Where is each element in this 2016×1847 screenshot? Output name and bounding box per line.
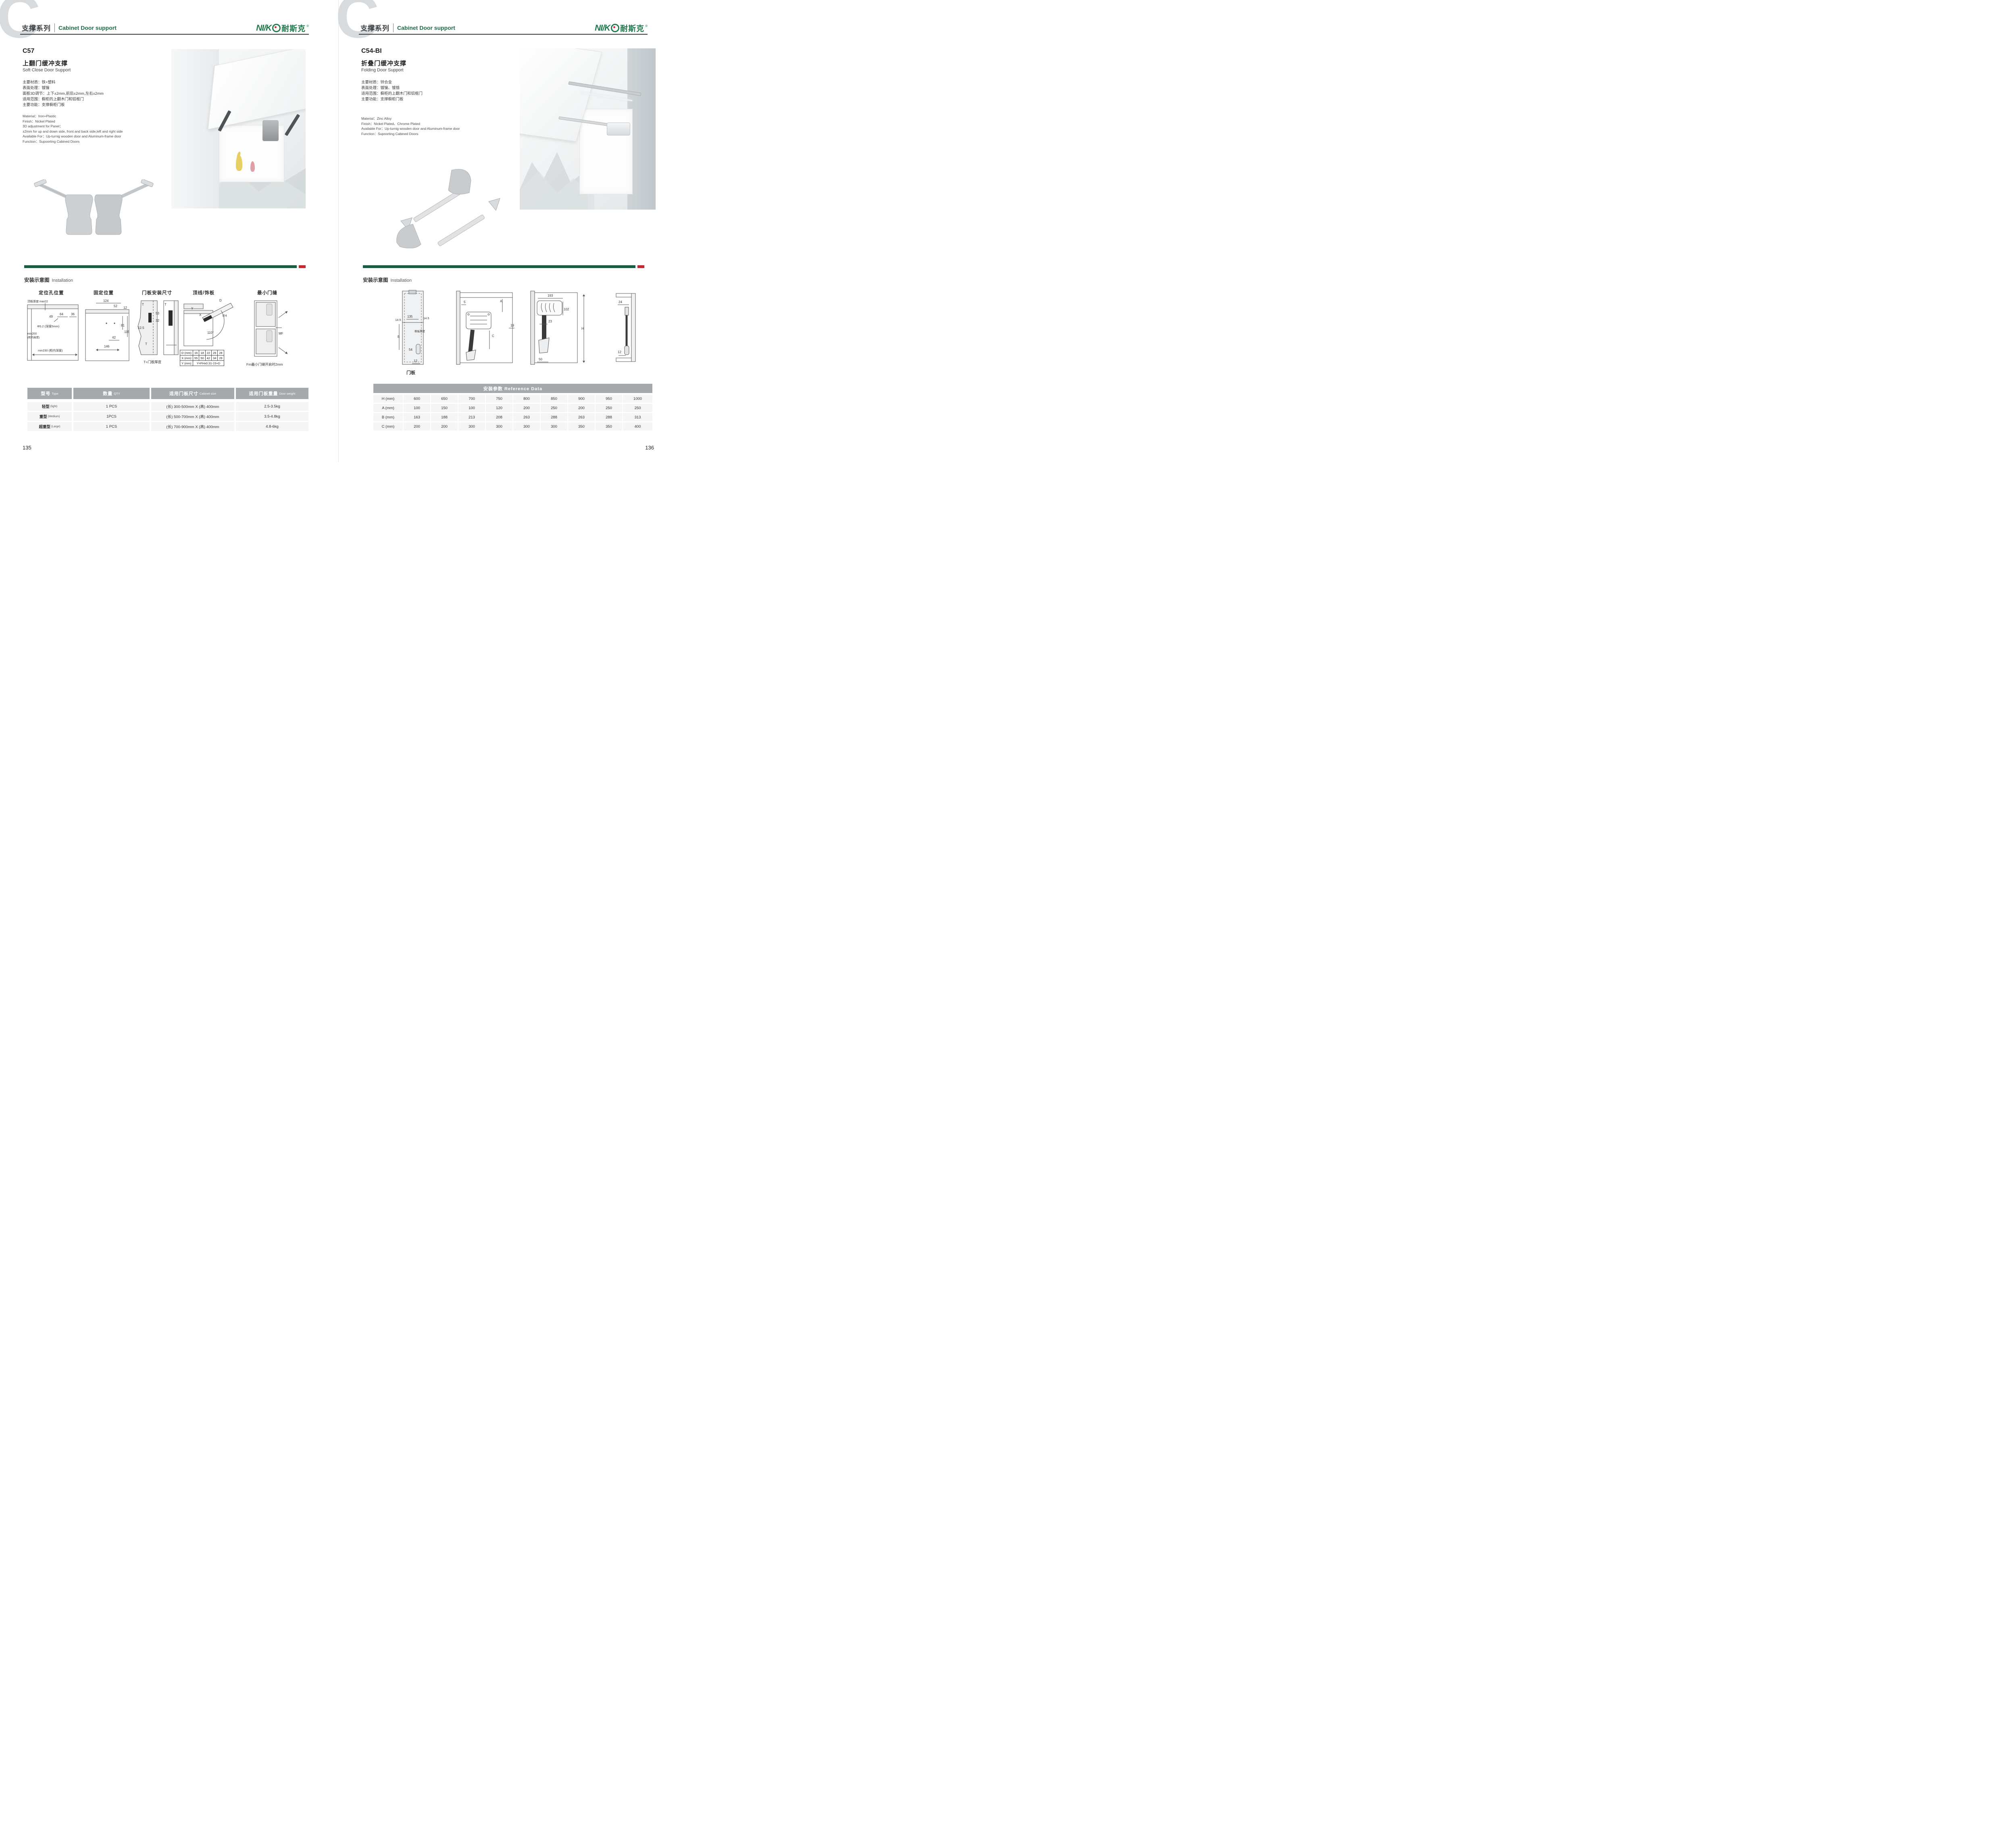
diagram-install-section-a: 5 A C 19 bbox=[455, 289, 517, 366]
value-cell: 263 bbox=[513, 413, 540, 421]
row-label: B (mm) bbox=[373, 413, 403, 421]
header-divider bbox=[54, 23, 55, 32]
svg-text:5: 5 bbox=[464, 300, 466, 304]
spec-line: 表面处理：镀镍、镀铬 bbox=[361, 85, 423, 91]
cell: 50 bbox=[199, 356, 205, 361]
row-label: A (mm) bbox=[373, 404, 403, 412]
svg-text:24: 24 bbox=[619, 300, 622, 304]
brand-logo: NI/K 耐斯克 ® bbox=[256, 23, 309, 33]
value-cell: 208 bbox=[486, 413, 512, 421]
svg-text:Φ5.2 (深度5mm): Φ5.2 (深度5mm) bbox=[37, 324, 60, 328]
table-cell-size: (长) 700-900mm X (高) 400mm bbox=[151, 422, 234, 431]
svg-text:T: T bbox=[165, 303, 167, 306]
cell: 55 bbox=[193, 356, 199, 361]
product-photo-cabinet bbox=[171, 49, 306, 208]
svg-text:52: 52 bbox=[114, 304, 117, 308]
value-cell: 250 bbox=[541, 404, 567, 412]
spec-line: 主要材质：铁+塑料 bbox=[23, 80, 104, 85]
spec-line: 主要材质：锌合金 bbox=[361, 80, 423, 85]
specs-cn: 主要材质：锌合金 表面处理：镀镍、镀铬 适用范围：橱柜的上翻木门和铝框门 主要功… bbox=[361, 80, 423, 102]
diagram-fixing-position: 124 52 12 81 115 42 146 bbox=[84, 298, 132, 366]
value-cell: 200 bbox=[568, 404, 595, 412]
product-title-en: Folding Door Support bbox=[361, 68, 404, 73]
diagram-title: 顶线/饰板 bbox=[193, 289, 215, 296]
reference-table-title: 安装参数 Reference Data bbox=[373, 384, 652, 393]
table-header: 数量 QTY bbox=[73, 388, 150, 399]
spec-line: 面板3D调节：上下±2mm,前后±2mm,左右±2mm bbox=[23, 91, 104, 97]
cell: Y (mm) bbox=[180, 361, 193, 366]
svg-text:侧板厚度: 侧板厚度 bbox=[414, 329, 425, 333]
table-header: 适用门板尺寸 Cabinet size bbox=[151, 388, 234, 399]
value-cell: 300 bbox=[541, 422, 567, 431]
spec-line: Material：Zinc Alloy bbox=[361, 116, 460, 121]
svg-text:54: 54 bbox=[409, 348, 412, 352]
value-cell: 650 bbox=[431, 395, 458, 403]
cell: 22 bbox=[205, 350, 211, 356]
svg-text:42: 42 bbox=[112, 336, 116, 339]
page-header: 支撑系列 Cabinet Door support bbox=[22, 23, 117, 33]
crown-panel-data-table: D (mm) 16 18 22 26 28 X (mm) 55 50 42 34… bbox=[180, 350, 224, 366]
cell: X (mm) bbox=[180, 356, 193, 361]
table-cell-qty: 1PCS bbox=[73, 412, 150, 421]
header-rule bbox=[359, 34, 648, 35]
cell: 28 bbox=[218, 350, 224, 356]
svg-text:53: 53 bbox=[156, 312, 159, 315]
svg-text:12: 12 bbox=[123, 306, 127, 310]
logo-registered-mark: ® bbox=[645, 24, 648, 28]
logo-cn-text: 耐斯克 bbox=[281, 23, 306, 33]
table-cell-size: (长) 300-500mm X (高) 400mm bbox=[151, 402, 234, 411]
svg-text:MF: MF bbox=[279, 332, 283, 335]
svg-text:12: 12 bbox=[414, 359, 417, 363]
install-divider-red bbox=[637, 265, 644, 268]
svg-text:64: 64 bbox=[60, 312, 63, 316]
type-cn: 超重型 bbox=[39, 424, 50, 429]
value-cell: 313 bbox=[623, 413, 652, 421]
value-cell: 300 bbox=[458, 422, 485, 431]
value-cell: 300 bbox=[513, 422, 540, 431]
diagram-install-section-b: 193 102 23 H 50 bbox=[528, 289, 588, 366]
damper-body bbox=[607, 123, 630, 135]
spec-line: Available For：Up-turnig wooden door and … bbox=[23, 134, 123, 139]
value-cell: 700 bbox=[458, 395, 485, 403]
header-cn: 型号 bbox=[41, 390, 50, 397]
svg-text:14.5: 14.5 bbox=[423, 316, 429, 320]
value-cell: 200 bbox=[513, 404, 540, 412]
product-title-en: Soft Close Door Support bbox=[23, 68, 71, 73]
pink-figurine bbox=[250, 161, 255, 172]
logo-cn-text: 耐斯克 bbox=[620, 23, 644, 33]
row-label: H (mm) bbox=[373, 395, 403, 403]
spec-line: Material：Iron+Plastic bbox=[23, 114, 123, 119]
svg-text:102: 102 bbox=[564, 308, 569, 311]
svg-text:B: B bbox=[398, 335, 400, 339]
install-divider-red bbox=[299, 265, 306, 268]
cell: 26 bbox=[212, 350, 218, 356]
svg-text:50: 50 bbox=[539, 358, 542, 361]
table-cell-type: 重型 (Medium) bbox=[27, 412, 72, 421]
catalog-spread: C 支撑系列 Cabinet Door support NI/K 耐斯克 ® C… bbox=[0, 0, 676, 462]
type-cn: 重型 bbox=[40, 414, 47, 419]
table-header: 适用门板重量 Door weight bbox=[236, 388, 308, 399]
diagram-crown-panel: Y X D FH 110° D (mm) 16 18 22 26 28 X (m… bbox=[182, 297, 239, 348]
svg-text:146: 146 bbox=[104, 345, 110, 348]
install-title-cn: 安装示意图 bbox=[363, 276, 388, 283]
spec-line: 3D adjustment for Panel： bbox=[23, 124, 123, 129]
value-cell: 350 bbox=[596, 422, 622, 431]
type-en: (light) bbox=[50, 405, 58, 408]
install-title-cn: 安装示意图 bbox=[24, 276, 50, 283]
spec-line: Finish：Nickel Plated bbox=[23, 119, 123, 124]
svg-text:C: C bbox=[492, 334, 494, 338]
cell: 42 bbox=[205, 356, 211, 361]
table-cell-weight: 3.5-4.8kg bbox=[236, 412, 308, 421]
svg-text:124: 124 bbox=[103, 299, 109, 303]
svg-text:115: 115 bbox=[124, 330, 129, 334]
diagram-title: 门板安装尺寸 bbox=[142, 289, 172, 296]
diagram-title: 定位孔位置 bbox=[39, 289, 64, 296]
header-cn: 适用门板尺寸 bbox=[169, 390, 198, 397]
svg-text:193: 193 bbox=[548, 294, 553, 297]
diagram-door-mounting-size: T 53 32 12.5 T T T=门板厚度 bbox=[135, 298, 182, 359]
spec-line: 主要功能：支撑橱柜门板 bbox=[23, 102, 104, 108]
type-cn: 轻型 bbox=[42, 404, 50, 409]
header-divider bbox=[393, 23, 394, 32]
table-cell-weight: 4.8-6kg bbox=[236, 422, 308, 431]
value-cell: 600 bbox=[404, 395, 430, 403]
table-cell-qty: 1 PCS bbox=[73, 422, 150, 431]
cell: 18 bbox=[199, 350, 205, 356]
value-cell: 188 bbox=[431, 413, 458, 421]
svg-text:81: 81 bbox=[121, 324, 125, 327]
svg-text:min230 (柜内深度): min230 (柜内深度) bbox=[38, 348, 63, 352]
spec-line: Available For：Up-turnig wooden door and … bbox=[361, 126, 460, 131]
value-cell: 300 bbox=[486, 422, 512, 431]
logo-ring-dot-icon bbox=[611, 24, 619, 32]
svg-text:12.5: 12.5 bbox=[138, 326, 144, 330]
product-photo-hardware bbox=[30, 179, 157, 236]
table-cell-size: (长) 500-700mm X (高) 400mm bbox=[151, 412, 234, 421]
page-right: C 支撑系列 Cabinet Door support NI/K 耐斯克 ® C… bbox=[338, 0, 676, 462]
diagram-note: T=门板厚度 bbox=[144, 360, 161, 364]
diagram-door-panel: 135 14.5 14.5 B 侧板厚度 54 12 门板 bbox=[395, 289, 430, 366]
value-cell: 100 bbox=[458, 404, 485, 412]
header-en: Type bbox=[52, 392, 58, 395]
brand-logo: NI/K 耐斯克 ® bbox=[595, 23, 648, 33]
table-header: 型号 Type bbox=[27, 388, 72, 399]
type-en: (Medium) bbox=[48, 415, 60, 418]
diagram-install-section-side: 24 12 bbox=[614, 289, 639, 366]
value-cell: 163 bbox=[404, 413, 430, 421]
logo-latin-text: NI/K bbox=[595, 23, 610, 33]
specs-cn: 主要材质：铁+塑料 表面处理：镀镍 面板3D调节：上下±2mm,前后±2mm,左… bbox=[23, 80, 104, 108]
hardware-pair-drawing bbox=[387, 156, 508, 248]
series-title-cn: 支撑系列 bbox=[22, 23, 51, 33]
logo-latin-text: NI/K bbox=[256, 23, 271, 33]
svg-text:49: 49 bbox=[49, 315, 53, 318]
diagram-positioning-holes: 顶板厚度 max22 49 64 36 Φ5.2 (深度5mm) min200 … bbox=[26, 298, 80, 366]
product-photo-cabinet bbox=[520, 48, 656, 210]
svg-text:(柜内高度): (柜内高度) bbox=[27, 335, 40, 339]
value-cell: 1000 bbox=[623, 395, 652, 403]
spec-line: ±2mm for up and down side, front and bac… bbox=[23, 129, 123, 134]
cell: 34 bbox=[212, 356, 218, 361]
type-en: (Large) bbox=[51, 425, 60, 428]
svg-text:min200: min200 bbox=[27, 333, 37, 335]
install-title-en: Installation bbox=[52, 278, 73, 283]
svg-text:36: 36 bbox=[71, 312, 75, 316]
page-left: C 支撑系列 Cabinet Door support NI/K 耐斯克 ® C… bbox=[0, 0, 338, 462]
row-label: C (mm) bbox=[373, 422, 403, 431]
cell: 16 bbox=[193, 350, 199, 356]
install-title: 安装示意图 Installation bbox=[24, 276, 73, 283]
value-cell: 750 bbox=[486, 395, 512, 403]
value-cell: 263 bbox=[568, 413, 595, 421]
install-title: 安装示意图 Installation bbox=[363, 276, 412, 283]
page-number: 136 bbox=[645, 445, 654, 451]
header-rule bbox=[20, 34, 309, 35]
svg-text:135: 135 bbox=[407, 315, 413, 318]
series-title-en: Cabinet Door support bbox=[58, 25, 117, 31]
spec-line: 适用范围：橱柜的上翻木门和铝框门 bbox=[23, 97, 104, 102]
spec-line: 适用范围：橱柜的上翻木门和铝框门 bbox=[361, 91, 423, 97]
svg-text:Y: Y bbox=[191, 307, 194, 310]
value-cell: 288 bbox=[596, 413, 622, 421]
svg-text:T: T bbox=[142, 303, 144, 306]
logo-ring-dot-icon bbox=[272, 24, 281, 32]
value-cell: 100 bbox=[404, 404, 430, 412]
svg-text:12: 12 bbox=[618, 350, 621, 354]
cell: 29 bbox=[218, 356, 224, 361]
product-model: C54-BI bbox=[361, 48, 382, 55]
value-cell: 800 bbox=[513, 395, 540, 403]
table-cell-type: 轻型 (light) bbox=[27, 402, 72, 411]
specs-en: Material：Iron+Plastic Finish：Nickel Plat… bbox=[23, 114, 123, 144]
product-title-cn: 上翻门缓冲支撑 bbox=[23, 59, 68, 67]
product-model: C57 bbox=[23, 48, 34, 55]
svg-text:14.5: 14.5 bbox=[395, 318, 401, 322]
value-cell: 900 bbox=[568, 395, 595, 403]
product-title-cn: 折叠门缓冲支撑 bbox=[361, 59, 406, 67]
header-cn: 数量 bbox=[103, 390, 112, 397]
table-cell-type: 超重型 (Large) bbox=[27, 422, 72, 431]
diagram-label: 门板 bbox=[406, 369, 415, 376]
series-title-en: Cabinet Door support bbox=[397, 25, 455, 31]
svg-text:顶板厚度 max22: 顶板厚度 max22 bbox=[27, 300, 48, 303]
value-cell: 850 bbox=[541, 395, 567, 403]
header-en: Cabinet size bbox=[200, 392, 216, 395]
cell: Y=FHx0.31-15+D bbox=[193, 361, 224, 366]
page-header: 支撑系列 Cabinet Door support bbox=[360, 23, 455, 33]
diagram-title: 最小门缝 bbox=[257, 289, 277, 296]
value-cell: 200 bbox=[404, 422, 430, 431]
value-cell: 400 bbox=[623, 422, 652, 431]
value-cell: 288 bbox=[541, 413, 567, 421]
table-cell-weight: 2.5-3.5kg bbox=[236, 402, 308, 411]
logo-registered-mark: ® bbox=[306, 24, 309, 28]
value-cell: 950 bbox=[596, 395, 622, 403]
diagram-min-door-gap: MF Fm最小门缝开启时2mm bbox=[252, 298, 289, 360]
table-cell-qty: 1 PCS bbox=[73, 402, 150, 411]
svg-text:19: 19 bbox=[510, 324, 514, 327]
svg-text:110°: 110° bbox=[207, 331, 214, 335]
header-en: QTY bbox=[114, 392, 120, 395]
svg-text:23: 23 bbox=[548, 320, 552, 323]
svg-text:X: X bbox=[199, 313, 202, 317]
svg-text:T: T bbox=[145, 342, 147, 346]
spec-line: Finish：Nickel Plated、Chrome Plated bbox=[361, 121, 460, 127]
value-cell: 213 bbox=[458, 413, 485, 421]
value-cell: 150 bbox=[431, 404, 458, 412]
value-cell: 250 bbox=[623, 404, 652, 412]
value-cell: 200 bbox=[431, 422, 458, 431]
cell: D (mm) bbox=[180, 350, 193, 356]
series-title-cn: 支撑系列 bbox=[360, 23, 389, 33]
svg-text:A: A bbox=[500, 300, 502, 303]
spec-line: 表面处理：镀镍 bbox=[23, 85, 104, 91]
install-divider-green bbox=[24, 265, 297, 268]
svg-text:32: 32 bbox=[156, 319, 159, 322]
value-cell: 120 bbox=[486, 404, 512, 412]
install-title-en: Installation bbox=[391, 278, 412, 283]
spec-line: Function：Supoorting Cabined Doors bbox=[361, 131, 460, 137]
page-number: 135 bbox=[23, 445, 31, 451]
svg-text:D: D bbox=[219, 299, 222, 302]
hardware-pair-drawing bbox=[30, 179, 157, 236]
product-photo-hardware bbox=[387, 156, 508, 248]
install-divider-green bbox=[363, 265, 635, 268]
spec-line: 主要功能：支撑橱柜门板 bbox=[361, 97, 423, 102]
header-en: Door weight bbox=[279, 392, 295, 395]
header-cn: 适用门板重量 bbox=[249, 390, 278, 397]
diagram-title: 固定位置 bbox=[94, 289, 114, 296]
spec-line: Function：Supoorting Cabined Doors bbox=[23, 139, 123, 144]
value-cell: 250 bbox=[596, 404, 622, 412]
value-cell: 350 bbox=[568, 422, 595, 431]
diagram-note: Fm最小门缝开启时2mm bbox=[246, 362, 283, 367]
damper-body bbox=[262, 120, 279, 141]
specs-en: Material：Zinc Alloy Finish：Nickel Plated… bbox=[361, 116, 460, 136]
